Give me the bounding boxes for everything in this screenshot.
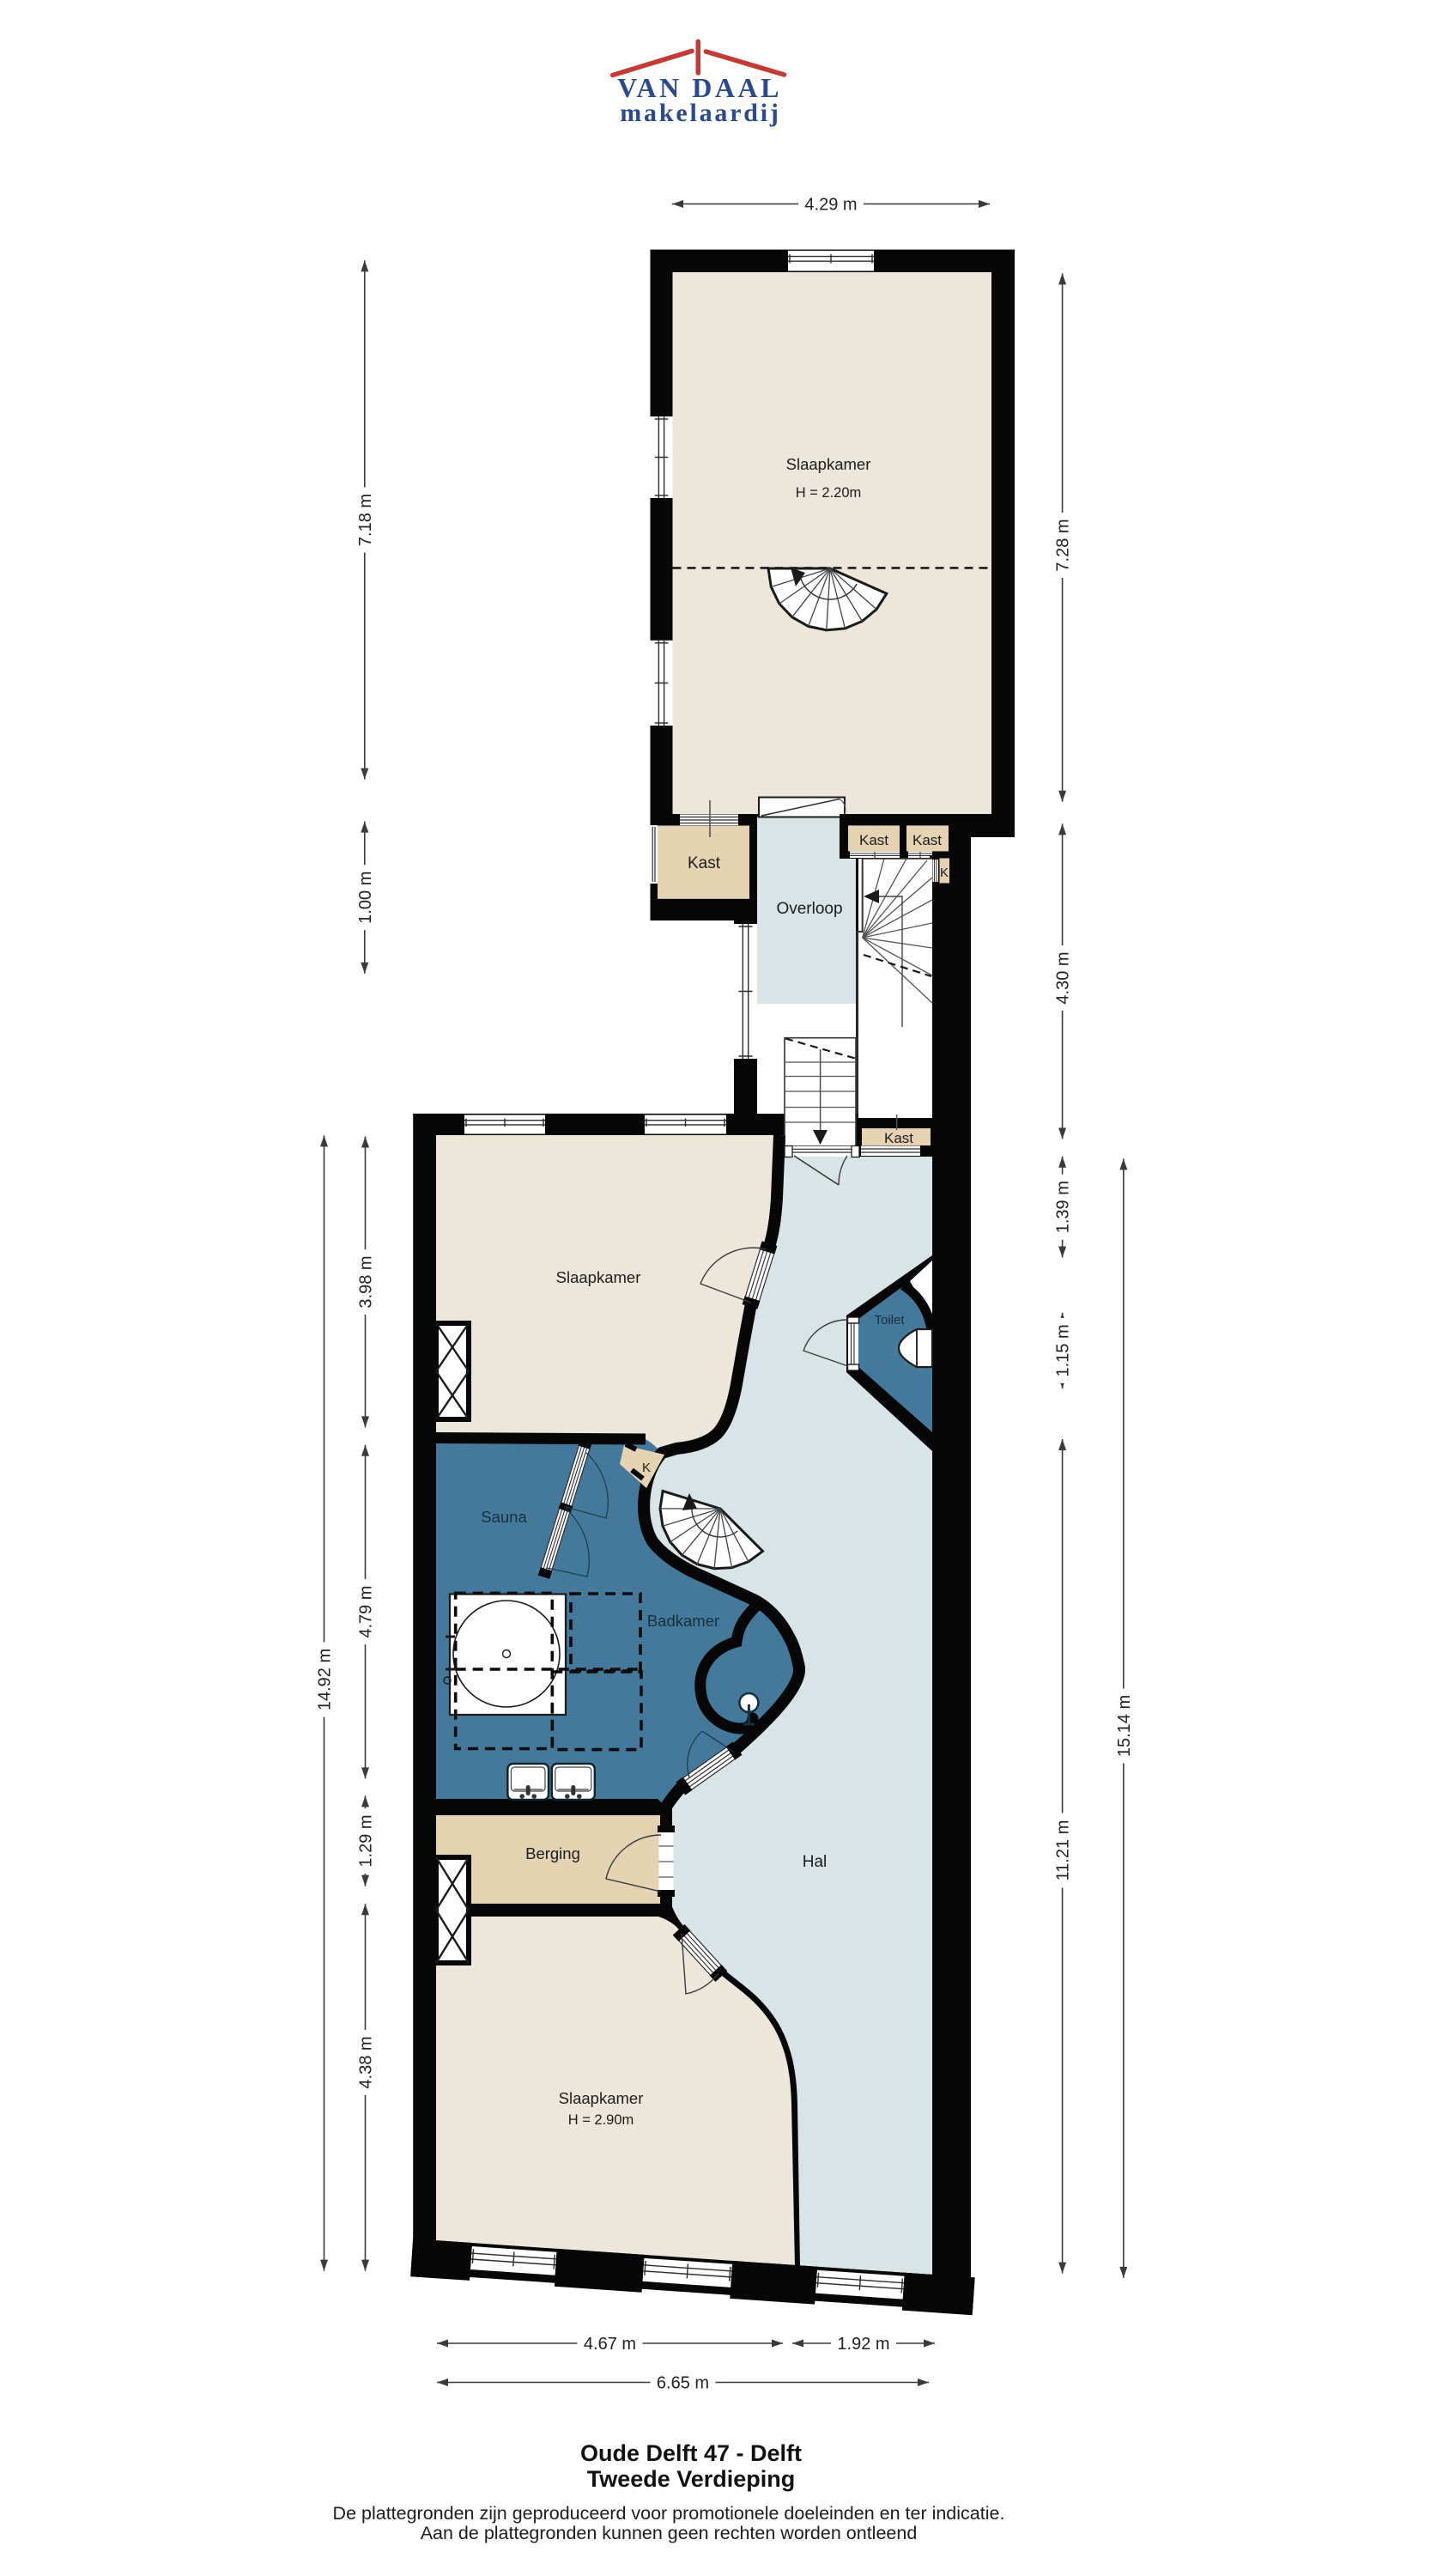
svg-text:7.28 m: 7.28 m: [1054, 519, 1073, 571]
svg-text:Overloop: Overloop: [776, 900, 842, 918]
svg-text:1.29 m: 1.29 m: [357, 1814, 376, 1867]
svg-text:H = 2.90m: H = 2.90m: [568, 2112, 634, 2128]
svg-text:Aan de plattegronden kunnen ge: Aan de plattegronden kunnen geen rechten…: [421, 2523, 918, 2543]
svg-text:H = 2.20m: H = 2.20m: [796, 485, 862, 501]
svg-text:4.67 m: 4.67 m: [584, 2335, 636, 2354]
svg-text:14.92 m: 14.92 m: [316, 1649, 335, 1710]
svg-text:Kast: Kast: [688, 854, 721, 872]
svg-text:Slaapkamer: Slaapkamer: [786, 455, 871, 473]
svg-text:Kast: Kast: [859, 832, 888, 848]
svg-text:1.39 m: 1.39 m: [1054, 1181, 1073, 1233]
svg-text:Kast: Kast: [884, 1130, 913, 1146]
svg-text:Tweede Verdieping: Tweede Verdieping: [587, 2466, 796, 2492]
svg-text:Toilet: Toilet: [874, 1313, 905, 1327]
svg-text:4.79 m: 4.79 m: [357, 1586, 376, 1638]
svg-text:Badkamer: Badkamer: [647, 1612, 719, 1630]
svg-text:4.38 m: 4.38 m: [357, 2036, 376, 2088]
svg-text:K: K: [940, 866, 949, 880]
svg-text:1.92 m: 1.92 m: [837, 2335, 889, 2354]
svg-text:Kast: Kast: [912, 832, 942, 848]
svg-text:4.30 m: 4.30 m: [1054, 951, 1073, 1004]
svg-text:11.21 m: 11.21 m: [1054, 1820, 1073, 1881]
svg-text:Hal: Hal: [803, 1853, 828, 1871]
svg-text:6.65 m: 6.65 m: [657, 2374, 709, 2393]
svg-text:Oude Delft 47 - Delft: Oude Delft 47 - Delft: [580, 2440, 802, 2466]
svg-text:4.29 m: 4.29 m: [804, 196, 857, 215]
svg-text:makelaardij: makelaardij: [620, 99, 780, 127]
svg-text:Slaapkamer: Slaapkamer: [559, 2089, 644, 2107]
svg-text:Slaapkamer: Slaapkamer: [556, 1268, 641, 1286]
svg-text:7.18 m: 7.18 m: [356, 494, 375, 546]
svg-text:1.15 m: 1.15 m: [1054, 1324, 1073, 1376]
svg-text:Berging: Berging: [525, 1844, 580, 1862]
svg-text:De plattegronden zijn geproduc: De plattegronden zijn geproduceerd voor …: [333, 2503, 1005, 2524]
svg-text:Sauna: Sauna: [481, 1508, 527, 1526]
svg-text:3.98 m: 3.98 m: [357, 1255, 376, 1308]
svg-text:K: K: [642, 1461, 651, 1475]
svg-text:1.00 m: 1.00 m: [356, 872, 375, 924]
svg-text:15.14 m: 15.14 m: [1115, 1695, 1134, 1757]
